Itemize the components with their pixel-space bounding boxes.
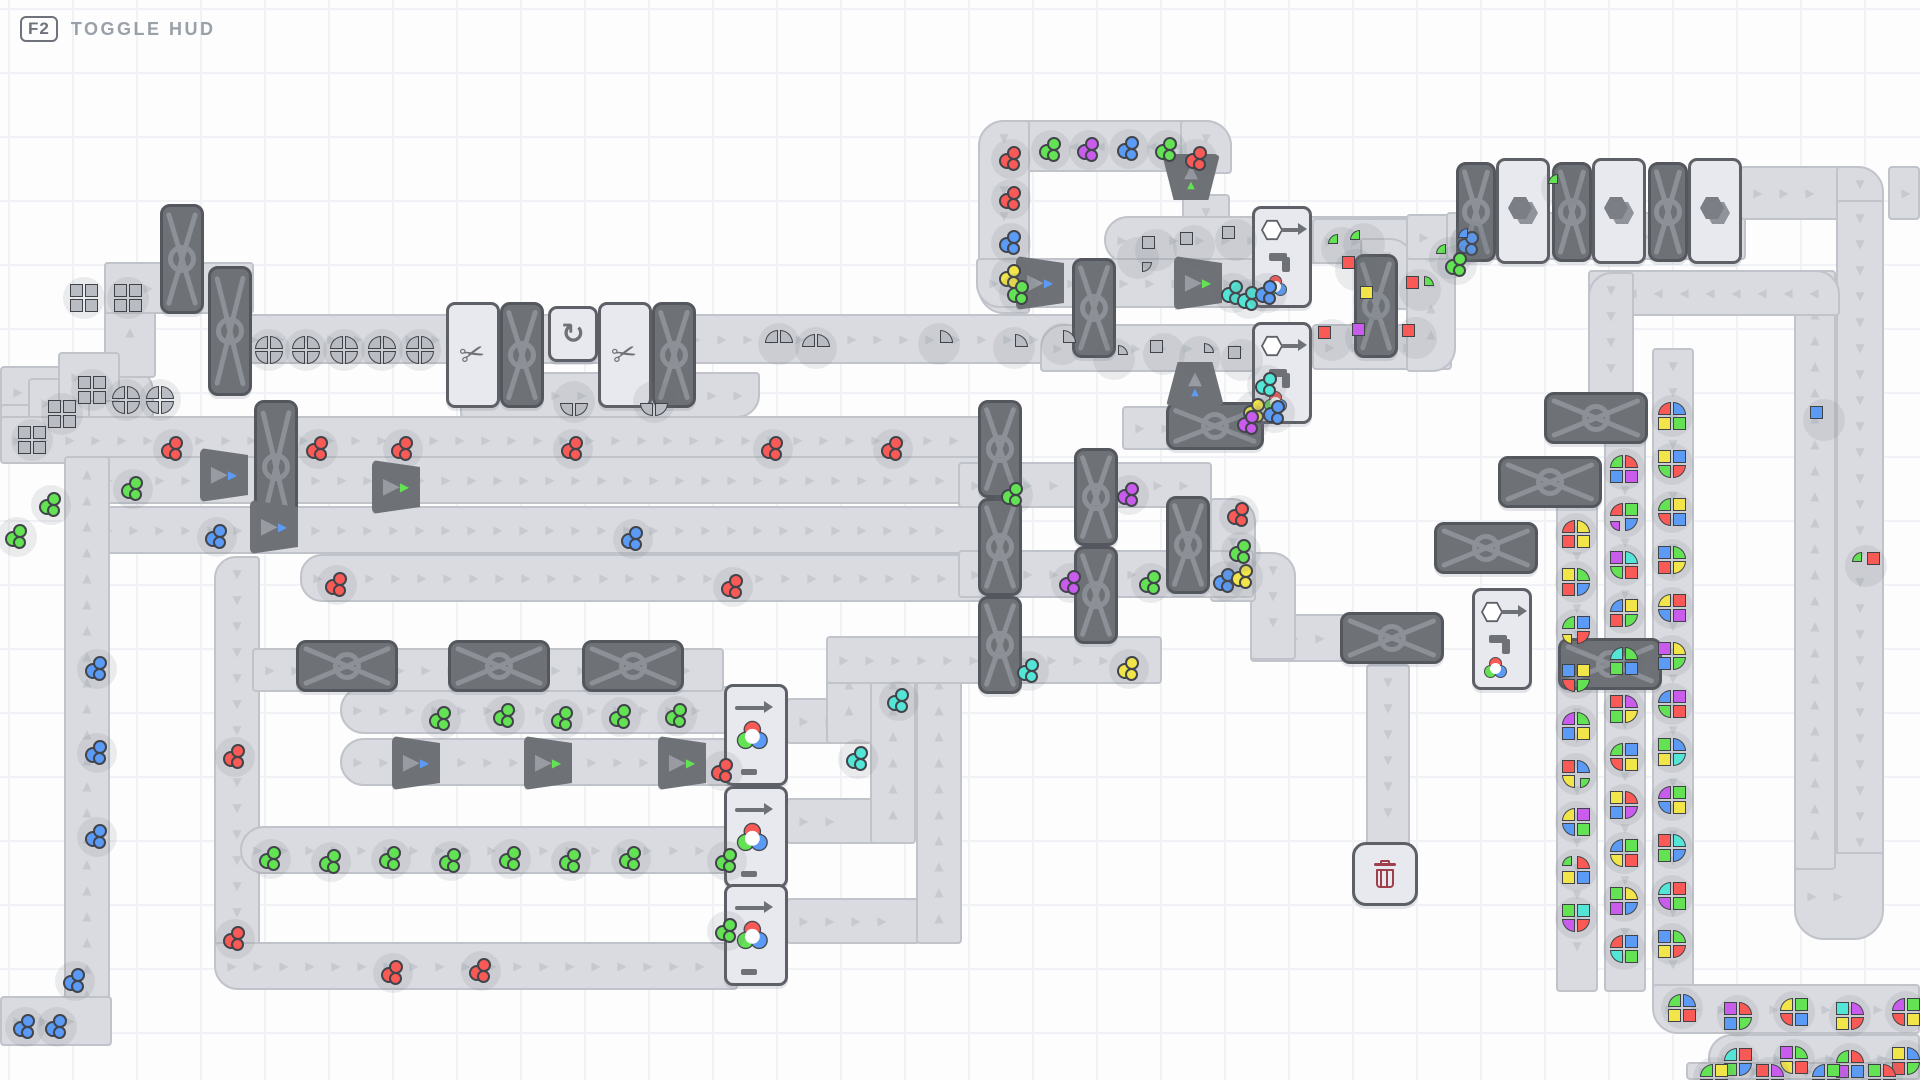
belt-arrow-icon: ▲ (1810, 542, 1819, 554)
item-shape (1562, 856, 1590, 884)
belt-arrow-icon: ▼ (232, 724, 241, 736)
belt-arrow-icon: ▲ (82, 936, 91, 948)
belt-arrow-icon: ▶ (873, 333, 882, 345)
item-paint (428, 706, 454, 732)
belt-arrow-icon: ▶ (591, 844, 600, 856)
item-shape (1222, 226, 1250, 254)
belt-arrow-icon: ▶ (695, 844, 704, 856)
belt-arrow-icon: ▶ (1099, 654, 1108, 666)
conveyor-belt[interactable]: ▶▶ (786, 798, 876, 844)
belt-arrow-icon: ▶ (481, 434, 490, 446)
belt-arrow-icon: ▲ (1810, 594, 1819, 606)
belt-arrow-icon: ▶ (643, 960, 652, 972)
belt-arrow-icon: ▶ (1805, 187, 1814, 199)
belt-arrow-icon: ▼ (1268, 590, 1277, 602)
belt-arrow-icon: ▶ (663, 434, 672, 446)
belt-arrow-icon: ▶ (623, 474, 632, 486)
item-shape (1658, 402, 1686, 430)
item-shape (1562, 568, 1590, 596)
balancer-machine[interactable] (1648, 162, 1688, 262)
belt-arrow-icon: ▶ (539, 844, 548, 856)
item-paint (4, 524, 30, 550)
belt-arrow-icon: ▶ (917, 654, 926, 666)
item-shape (1562, 904, 1590, 932)
belt-arrow-icon: ▶ (155, 474, 164, 486)
painter-machine[interactable] (1472, 588, 1532, 690)
item-shape (1150, 340, 1178, 368)
belt-arrow-icon: ▶ (639, 756, 648, 768)
stacker-icon (1604, 196, 1634, 226)
belt-arrow-icon: ▼ (232, 620, 241, 632)
item-shape (114, 284, 142, 312)
belt-arrow-icon: ▶ (833, 572, 842, 584)
belt-arrow-icon: ▶ (467, 524, 476, 536)
item-paint (1076, 137, 1102, 163)
hud-key-badge: F2 (20, 16, 58, 42)
belt-arrow-icon: ▶ (519, 474, 528, 486)
belt-arrow-icon: ▶ (649, 474, 658, 486)
item-shape (640, 388, 668, 416)
item-shape (1658, 834, 1686, 862)
arrow-icon (764, 901, 773, 913)
belt-arrow-icon: ▶ (279, 960, 288, 972)
belt-arrow-icon: ▼ (1855, 238, 1864, 250)
item-shape (1562, 664, 1590, 692)
belt-arrow-icon: ▼ (1855, 290, 1864, 302)
color-mixer-icon (737, 721, 769, 753)
belt-arrow-icon: ▲ (934, 808, 943, 820)
belt-arrow-icon: ▶ (519, 524, 528, 536)
belt-arrow-icon: ▶ (117, 434, 126, 446)
item-shape (1852, 552, 1880, 580)
item-paint (998, 186, 1024, 212)
belt-arrow-icon: ▶ (571, 474, 580, 486)
scissors-icon: ✂ (609, 337, 641, 372)
belt-arrow-icon: ▶ (379, 704, 388, 716)
item-shape (1360, 286, 1388, 314)
belt-arrow-icon: ▶ (1779, 187, 1788, 199)
item-paint (160, 436, 186, 462)
belt-arrow-icon: ▼ (232, 776, 241, 788)
belt-arrow-icon: ▼ (1855, 368, 1864, 380)
item-paint (204, 524, 230, 550)
cutter-machine[interactable]: ✂ (446, 302, 500, 408)
balancer-machine[interactable] (296, 640, 398, 692)
belt-arrow-icon: ◀ (1783, 287, 1792, 299)
balancer-machine[interactable] (448, 640, 550, 692)
conveyor-belt[interactable]: ▶▶▶ (1740, 166, 1844, 220)
belt-arrow-icon: ▶ (669, 960, 678, 972)
belt-arrow-icon: ▶ (155, 524, 164, 536)
belt-arrow-icon: ▶ (305, 960, 314, 972)
conveyor-belt[interactable]: ▼▼▼▼▼▼▼▼▼▼▼▼▼▼▼▼▼▼▼▼▼▼▼▼▼ (1836, 200, 1884, 868)
item-shape (330, 336, 358, 364)
belt-arrow-icon: ▼ (1855, 342, 1864, 354)
belt-arrow-icon: ▶ (943, 654, 952, 666)
belt-arrow-icon: ▶ (337, 474, 346, 486)
item-shape (1868, 1064, 1896, 1080)
belt-arrow-icon: ▶ (703, 572, 712, 584)
balancer-machine[interactable] (1166, 496, 1210, 594)
belt-arrow-icon: ▲ (1810, 386, 1819, 398)
belt-arrow-icon: ▶ (799, 915, 808, 927)
belt-arrow-icon: ▼ (232, 672, 241, 684)
item-shape (146, 386, 174, 414)
belt-arrow-icon: ▶ (91, 434, 100, 446)
item-paint (1254, 280, 1280, 306)
item-shape (1610, 935, 1638, 963)
belt-arrow-icon: ▼ (1383, 780, 1392, 792)
item-paint (498, 846, 524, 872)
belt-arrow-icon: ▶ (1315, 632, 1324, 644)
belt-arrow-icon: ▼ (232, 698, 241, 710)
belt-arrow-icon: ▼ (232, 828, 241, 840)
item-paint (390, 436, 416, 462)
belt-arrow-icon: ▶ (977, 333, 986, 345)
stacker-machine[interactable] (1688, 158, 1742, 264)
belt-arrow-icon: ▶ (587, 704, 596, 716)
belt-arrow-icon: ▲ (82, 910, 91, 922)
item-shape (1610, 599, 1638, 627)
belt-arrow-icon: ▶ (1047, 654, 1056, 666)
item-paint (222, 926, 248, 952)
belt-arrow-icon: ▶ (781, 572, 790, 584)
belt-arrow-icon: ▲ (1810, 698, 1819, 710)
belt-arrow-icon: ▶ (717, 333, 726, 345)
belt-arrow-icon: ▶ (733, 389, 742, 401)
belt-arrow-icon: ▶ (857, 524, 866, 536)
item-paint (880, 436, 906, 462)
item-shape (1610, 503, 1638, 531)
belt-arrow-icon: ▶ (857, 474, 866, 486)
conveyor-belt[interactable]: ▼▼▼▼ (1588, 272, 1634, 410)
filter-accent-icon: ▶ (552, 757, 561, 769)
belt-arrow-icon: ▶ (805, 524, 814, 536)
belt-arrow-icon: ▶ (429, 434, 438, 446)
belt-arrow-icon: ▲ (888, 808, 897, 820)
conveyor-belt[interactable]: ▲▲▲▲▲▲▲▲▲▲▲ (916, 640, 962, 944)
belt-arrow-icon: ▶ (753, 474, 762, 486)
belt-arrow-icon: ▼ (1383, 728, 1392, 740)
item-shape (1610, 647, 1638, 675)
belt-arrow-icon: ▶ (1119, 277, 1128, 289)
belt-arrow-icon: ▶ (573, 572, 582, 584)
balancer-machine[interactable] (582, 640, 684, 692)
belt-arrow-icon: ▶ (1073, 654, 1082, 666)
item-paint (84, 656, 110, 682)
belt-arrow-icon: ◀ (1653, 287, 1662, 299)
belt-arrow-icon: ▶ (617, 960, 626, 972)
belt-arrow-icon: ▶ (799, 815, 808, 827)
item-shape (1562, 760, 1590, 788)
belt-arrow-icon: ▼ (1855, 316, 1864, 328)
belt-arrow-icon: ▶ (859, 572, 868, 584)
item-shape (1610, 791, 1638, 819)
item-paint (714, 918, 740, 944)
item-paint (120, 476, 146, 502)
belt-arrow-icon: ▶ (909, 474, 918, 486)
belt-arrow-icon: ▲ (82, 598, 91, 610)
belt-arrow-icon: ▶ (911, 572, 920, 584)
trash-machine[interactable] (1352, 842, 1418, 906)
filter-accent-icon: ▶ (278, 521, 287, 533)
filter-machine[interactable]: ▶▶ (524, 736, 572, 790)
belt-arrow-icon: ▼ (1855, 758, 1864, 770)
belt-arrow-icon: ▶ (495, 572, 504, 584)
belt-arrow-icon: ▶ (65, 434, 74, 446)
belt-arrow-icon: ▶ (923, 434, 932, 446)
belt-arrow-icon: ▶ (793, 434, 802, 446)
stacker-machine[interactable] (1496, 158, 1550, 264)
item-shape (1658, 786, 1686, 814)
filter-machine[interactable]: ▶▶ (658, 736, 706, 790)
belt-arrow-icon: ▶ (1135, 422, 1144, 434)
belt-arrow-icon: ▶ (1873, 1003, 1882, 1015)
belt-arrow-icon: ▼ (1855, 628, 1864, 640)
belt-arrow-icon: ▼ (1855, 446, 1864, 458)
belt-arrow-icon: ▲ (1810, 802, 1819, 814)
belt-arrow-icon: ▶ (831, 474, 840, 486)
belt-arrow-icon: ▼ (232, 646, 241, 658)
belt-arrow-icon: ▲ (1810, 490, 1819, 502)
belt-arrow-icon: ▶ (443, 572, 452, 584)
belt-arrow-icon: ▶ (727, 524, 736, 536)
belt-arrow-icon: ▼ (1606, 362, 1615, 374)
item-shape (1318, 326, 1346, 354)
filter-accent-icon: ▶ (1202, 277, 1211, 289)
belt-arrow-icon: ▼ (1606, 336, 1615, 348)
belt-arrow-icon: ▼ (1268, 616, 1277, 628)
item-paint (222, 744, 248, 770)
belt-arrow-icon: ▶ (353, 704, 362, 716)
item-shape (1658, 642, 1686, 670)
belt-arrow-icon: ▶ (587, 756, 596, 768)
belt-arrow-icon: ▼ (1572, 940, 1581, 952)
belt-arrow-icon: ▶ (675, 524, 684, 536)
item-shape (1562, 712, 1590, 740)
item-paint (62, 968, 88, 994)
belt-arrow-icon: ▲ (888, 756, 897, 768)
belt-arrow-icon: ▶ (807, 572, 816, 584)
belt-arrow-icon: ▲ (934, 912, 943, 924)
belt-arrow-icon: ▶ (831, 524, 840, 536)
belt-arrow-icon: ▶ (365, 572, 374, 584)
belt-arrow-icon: ▼ (1383, 754, 1392, 766)
belt-arrow-icon: ▼ (1383, 702, 1392, 714)
item-paint (12, 1014, 38, 1040)
belt-arrow-icon: ▲ (1810, 724, 1819, 736)
belt-arrow-icon: ▶ (493, 474, 502, 486)
filter-machine[interactable]: ▶▶ (250, 500, 298, 554)
item-shape (1780, 998, 1808, 1026)
item-paint (664, 703, 690, 729)
item-paint (38, 492, 64, 518)
item-paint (608, 704, 634, 730)
belt-arrow-icon: ▶ (597, 524, 606, 536)
belt-arrow-icon: ▶ (509, 756, 518, 768)
belt-arrow-icon: ▼ (1855, 394, 1864, 406)
item-paint (1226, 502, 1252, 528)
arrow-icon (1518, 605, 1527, 617)
filter-machine[interactable]: ▶▶ (372, 460, 420, 514)
belt-arrow-icon: ◀ (1757, 287, 1766, 299)
filter-accent-icon: ▶ (686, 757, 695, 769)
belt-arrow-icon: ▼ (1855, 178, 1864, 190)
belt-arrow-icon: ▶ (1049, 479, 1058, 491)
belt-arrow-icon: ▶ (701, 474, 710, 486)
belt-arrow-icon: ▶ (545, 474, 554, 486)
item-paint (84, 740, 110, 766)
belt-arrow-icon: ▼ (1855, 836, 1864, 848)
belt-arrow-icon: ▶ (533, 434, 542, 446)
conveyor-belt[interactable]: ▶ (1888, 166, 1920, 220)
filter-machine[interactable]: ▶▶ (200, 448, 248, 502)
balancer-machine[interactable] (160, 204, 204, 314)
balancer-machine[interactable] (1498, 456, 1602, 508)
conveyor-belt[interactable]: ▶▶▶▶ (786, 898, 920, 944)
item-shape (1658, 594, 1686, 622)
item-shape (1836, 1002, 1864, 1030)
belt-arrow-icon: ◀ (1809, 287, 1818, 299)
belt-arrow-icon: ▼ (1383, 806, 1392, 818)
item-shape (18, 426, 46, 454)
conveyor-belt[interactable]: ▲▲▲▲▲▲▲▲▲▲▲▲▲▲▲▲▲▲▲▲▲▲ (1794, 270, 1836, 870)
item-paint (44, 1014, 70, 1040)
belt-arrow-icon: ▶ (727, 474, 736, 486)
belt-arrow-icon: ▶ (805, 474, 814, 486)
factory-world: ▶▶▶▶▶▲▲▲▶▶▶▶▶▶▶▶▶▶▶▶▶▶▶▶▶▶▶▶▶▶▶▶▶▶▶▶▶▶▶▶… (0, 0, 1920, 1080)
belt-arrow-icon: ▶ (353, 756, 362, 768)
belt-arrow-icon: ▲ (82, 624, 91, 636)
belt-arrow-icon: ▶ (357, 844, 366, 856)
belt-arrow-icon: ▶ (591, 960, 600, 972)
conveyor-belt[interactable]: ▶▶▶▶▶▶▶▶▶▶▶▶▶▶▶▶▶▶▶▶▶▶▶▶▶ (300, 554, 982, 602)
belt-arrow-icon: ▶ (357, 960, 366, 972)
balancer-machine[interactable] (1544, 392, 1648, 444)
item-shape (1892, 998, 1920, 1026)
belt-arrow-icon: ▶ (227, 960, 236, 972)
belt-arrow-icon: ▶ (1901, 187, 1910, 199)
belt-arrow-icon: ▼ (1855, 212, 1864, 224)
belt-arrow-icon: ▲ (888, 730, 897, 742)
belt-arrow-icon: ▶ (877, 915, 886, 927)
item-paint (318, 849, 344, 875)
belt-arrow-icon: ▶ (417, 572, 426, 584)
belt-arrow-icon: ▲ (1810, 750, 1819, 762)
item-paint (258, 846, 284, 872)
belt-arrow-icon: ▶ (1807, 890, 1816, 902)
filter-accent-icon: ▶ (228, 469, 237, 481)
belt-arrow-icon: ▶ (409, 844, 418, 856)
arrow-icon (1298, 339, 1307, 351)
item-shape (1406, 276, 1434, 304)
filter-accent-icon: ▶ (400, 481, 409, 493)
belt-arrow-icon: ▶ (899, 333, 908, 345)
item-paint (324, 572, 350, 598)
balancer-machine[interactable] (1340, 612, 1444, 664)
belt-arrow-icon: ▶ (221, 434, 230, 446)
belt-arrow-icon: ▶ (311, 474, 320, 486)
rotator-machine[interactable]: ↻ (548, 306, 598, 362)
belt-arrow-icon: ▶ (755, 572, 764, 584)
belt-arrow-icon: ▶ (389, 524, 398, 536)
belt-arrow-icon: ▶ (885, 572, 894, 584)
balancer-machine[interactable] (500, 302, 544, 408)
item-shape (1100, 345, 1128, 373)
belt-arrow-icon: ▲ (1810, 568, 1819, 580)
belt-arrow-icon: ▲ (1810, 360, 1819, 372)
belt-arrow-icon: ▶ (741, 434, 750, 446)
belt-arrow-icon: ▼ (1855, 732, 1864, 744)
belt-arrow-icon: ▶ (265, 664, 274, 676)
color-wheel-icon (1484, 657, 1508, 681)
belt-arrow-icon: ▶ (435, 960, 444, 972)
belt-arrow-icon: ▼ (1855, 706, 1864, 718)
belt-arrow-icon: ▶ (779, 474, 788, 486)
belt-arrow-icon: ▶ (839, 654, 848, 666)
item-paint (998, 146, 1024, 172)
belt-arrow-icon: ▶ (695, 960, 704, 972)
item-shape (1610, 455, 1638, 483)
item-shape (1658, 498, 1686, 526)
item-shape (1658, 690, 1686, 718)
filter-arrow-icon: ▶ (211, 464, 228, 486)
item-paint (560, 436, 586, 462)
belt-arrow-icon: ▼ (1668, 360, 1677, 372)
belt-arrow-icon: ▲ (1810, 828, 1819, 840)
belt-arrow-icon: ▼ (1855, 784, 1864, 796)
item-paint (380, 960, 406, 986)
item-paint (714, 848, 740, 874)
belt-arrow-icon: ▶ (337, 524, 346, 536)
item-paint (378, 846, 404, 872)
rotate-icon: ↻ (561, 320, 584, 348)
belt-arrow-icon: ▶ (421, 664, 430, 676)
belt-arrow-icon: ▲ (888, 782, 897, 794)
belt-arrow-icon: ▶ (469, 572, 478, 584)
conveyor-belt[interactable]: ▼▼▼▼▼▼ (1366, 664, 1410, 848)
arrow-icon (764, 803, 773, 815)
item-shape (1810, 406, 1838, 434)
belt-arrow-icon: ▲ (934, 834, 943, 846)
item-paint (618, 846, 644, 872)
filter-machine[interactable]: ▶▶ (392, 736, 440, 790)
belt-arrow-icon: ▶ (1145, 277, 1154, 289)
item-shape (1610, 695, 1638, 723)
belt-arrow-icon: ▲ (82, 494, 91, 506)
belt-arrow-icon: ▶ (909, 524, 918, 536)
belt-arrow-icon: ▼ (1606, 310, 1615, 322)
balancer-machine[interactable] (208, 266, 252, 396)
balancer-machine[interactable] (1434, 522, 1538, 574)
belt-arrow-icon: ▶ (753, 524, 762, 536)
item-paint (492, 703, 518, 729)
belt-arrow-icon: ▶ (571, 524, 580, 536)
belt-arrow-icon: ▶ (483, 756, 492, 768)
item-paint (1038, 137, 1064, 163)
item-paint (558, 848, 584, 874)
belt-arrow-icon: ▶ (1179, 479, 1188, 491)
item-shape (560, 388, 588, 416)
belt-arrow-icon: ▶ (865, 654, 874, 666)
item-shape (1562, 808, 1590, 836)
belt-arrow-icon: ◀ (1679, 287, 1688, 299)
item-shape (1724, 1002, 1752, 1030)
belt-arrow-icon: ▶ (455, 434, 464, 446)
stacker-machine[interactable] (1592, 158, 1646, 264)
belt-arrow-icon: ▶ (937, 572, 946, 584)
item-shape (1610, 887, 1638, 915)
